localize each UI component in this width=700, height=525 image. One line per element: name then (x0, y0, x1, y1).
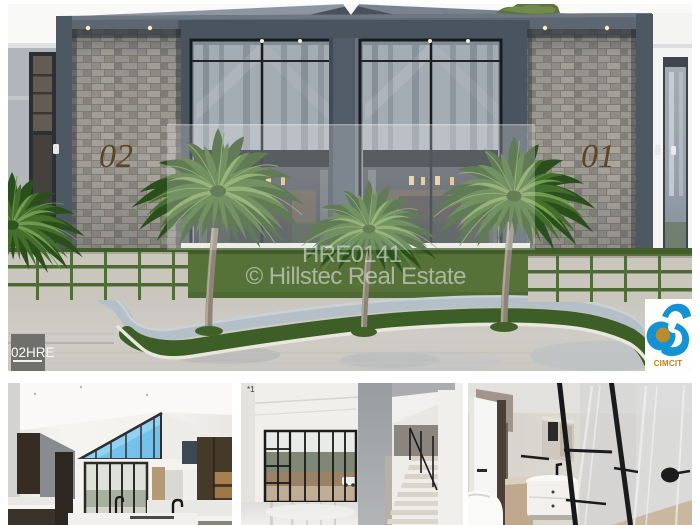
svg-text:*1: *1 (247, 385, 255, 394)
svg-text:© Hillstec Real Estate: © Hillstec Real Estate (246, 263, 467, 290)
svg-text:02HRE: 02HRE (11, 345, 55, 360)
svg-text:01: 01 (581, 138, 615, 175)
svg-text:CIMCIT: CIMCIT (654, 359, 683, 368)
svg-text:02: 02 (99, 138, 133, 175)
